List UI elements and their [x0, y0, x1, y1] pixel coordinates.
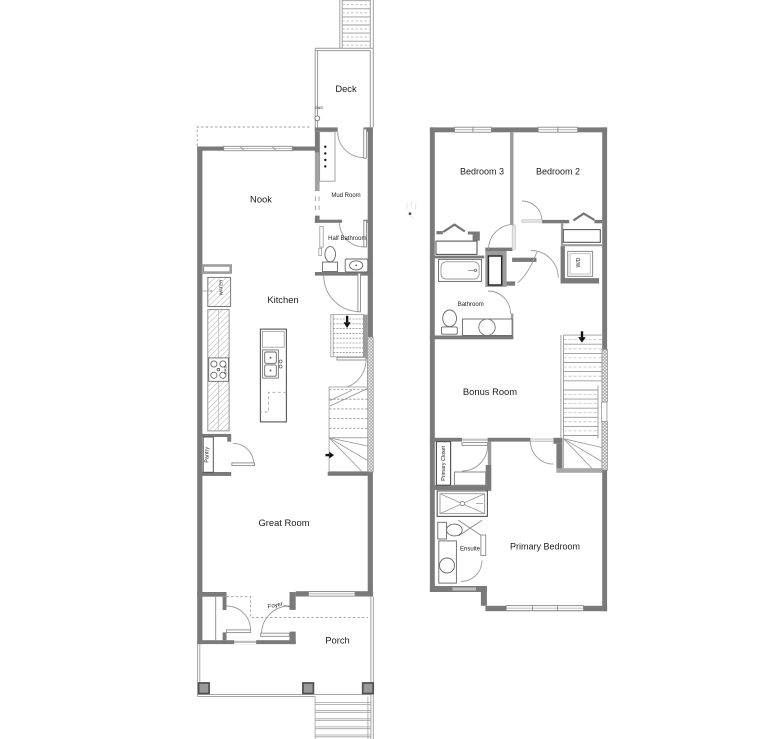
svg-text:W/D: W/D — [576, 257, 582, 267]
svg-text:GAS: GAS — [223, 365, 228, 374]
svg-text:Pantry: Pantry — [204, 447, 210, 463]
svg-text:Deck: Deck — [335, 83, 357, 94]
svg-text:Primary Bedroom: Primary Bedroom — [510, 542, 580, 552]
svg-text:Porch: Porch — [325, 635, 350, 646]
svg-text:Great Room: Great Room — [258, 517, 309, 528]
svg-text:GAS: GAS — [315, 105, 324, 110]
svg-text:Bonus Room: Bonus Room — [463, 386, 517, 397]
svg-text:Half Bathroom: Half Bathroom — [328, 236, 366, 242]
svg-text:Bedroom 2: Bedroom 2 — [536, 167, 580, 177]
svg-text:WATER: WATER — [219, 279, 224, 295]
svg-text:Bedroom 3: Bedroom 3 — [460, 167, 504, 177]
svg-text:Nook: Nook — [250, 194, 272, 205]
svg-text:Kitchen: Kitchen — [267, 294, 298, 305]
svg-text:Primary Closet: Primary Closet — [441, 446, 447, 481]
svg-text:Bathroom: Bathroom — [458, 302, 484, 308]
svg-text:Ensuite: Ensuite — [460, 547, 481, 553]
svg-text:Mud Room: Mud Room — [331, 193, 360, 199]
